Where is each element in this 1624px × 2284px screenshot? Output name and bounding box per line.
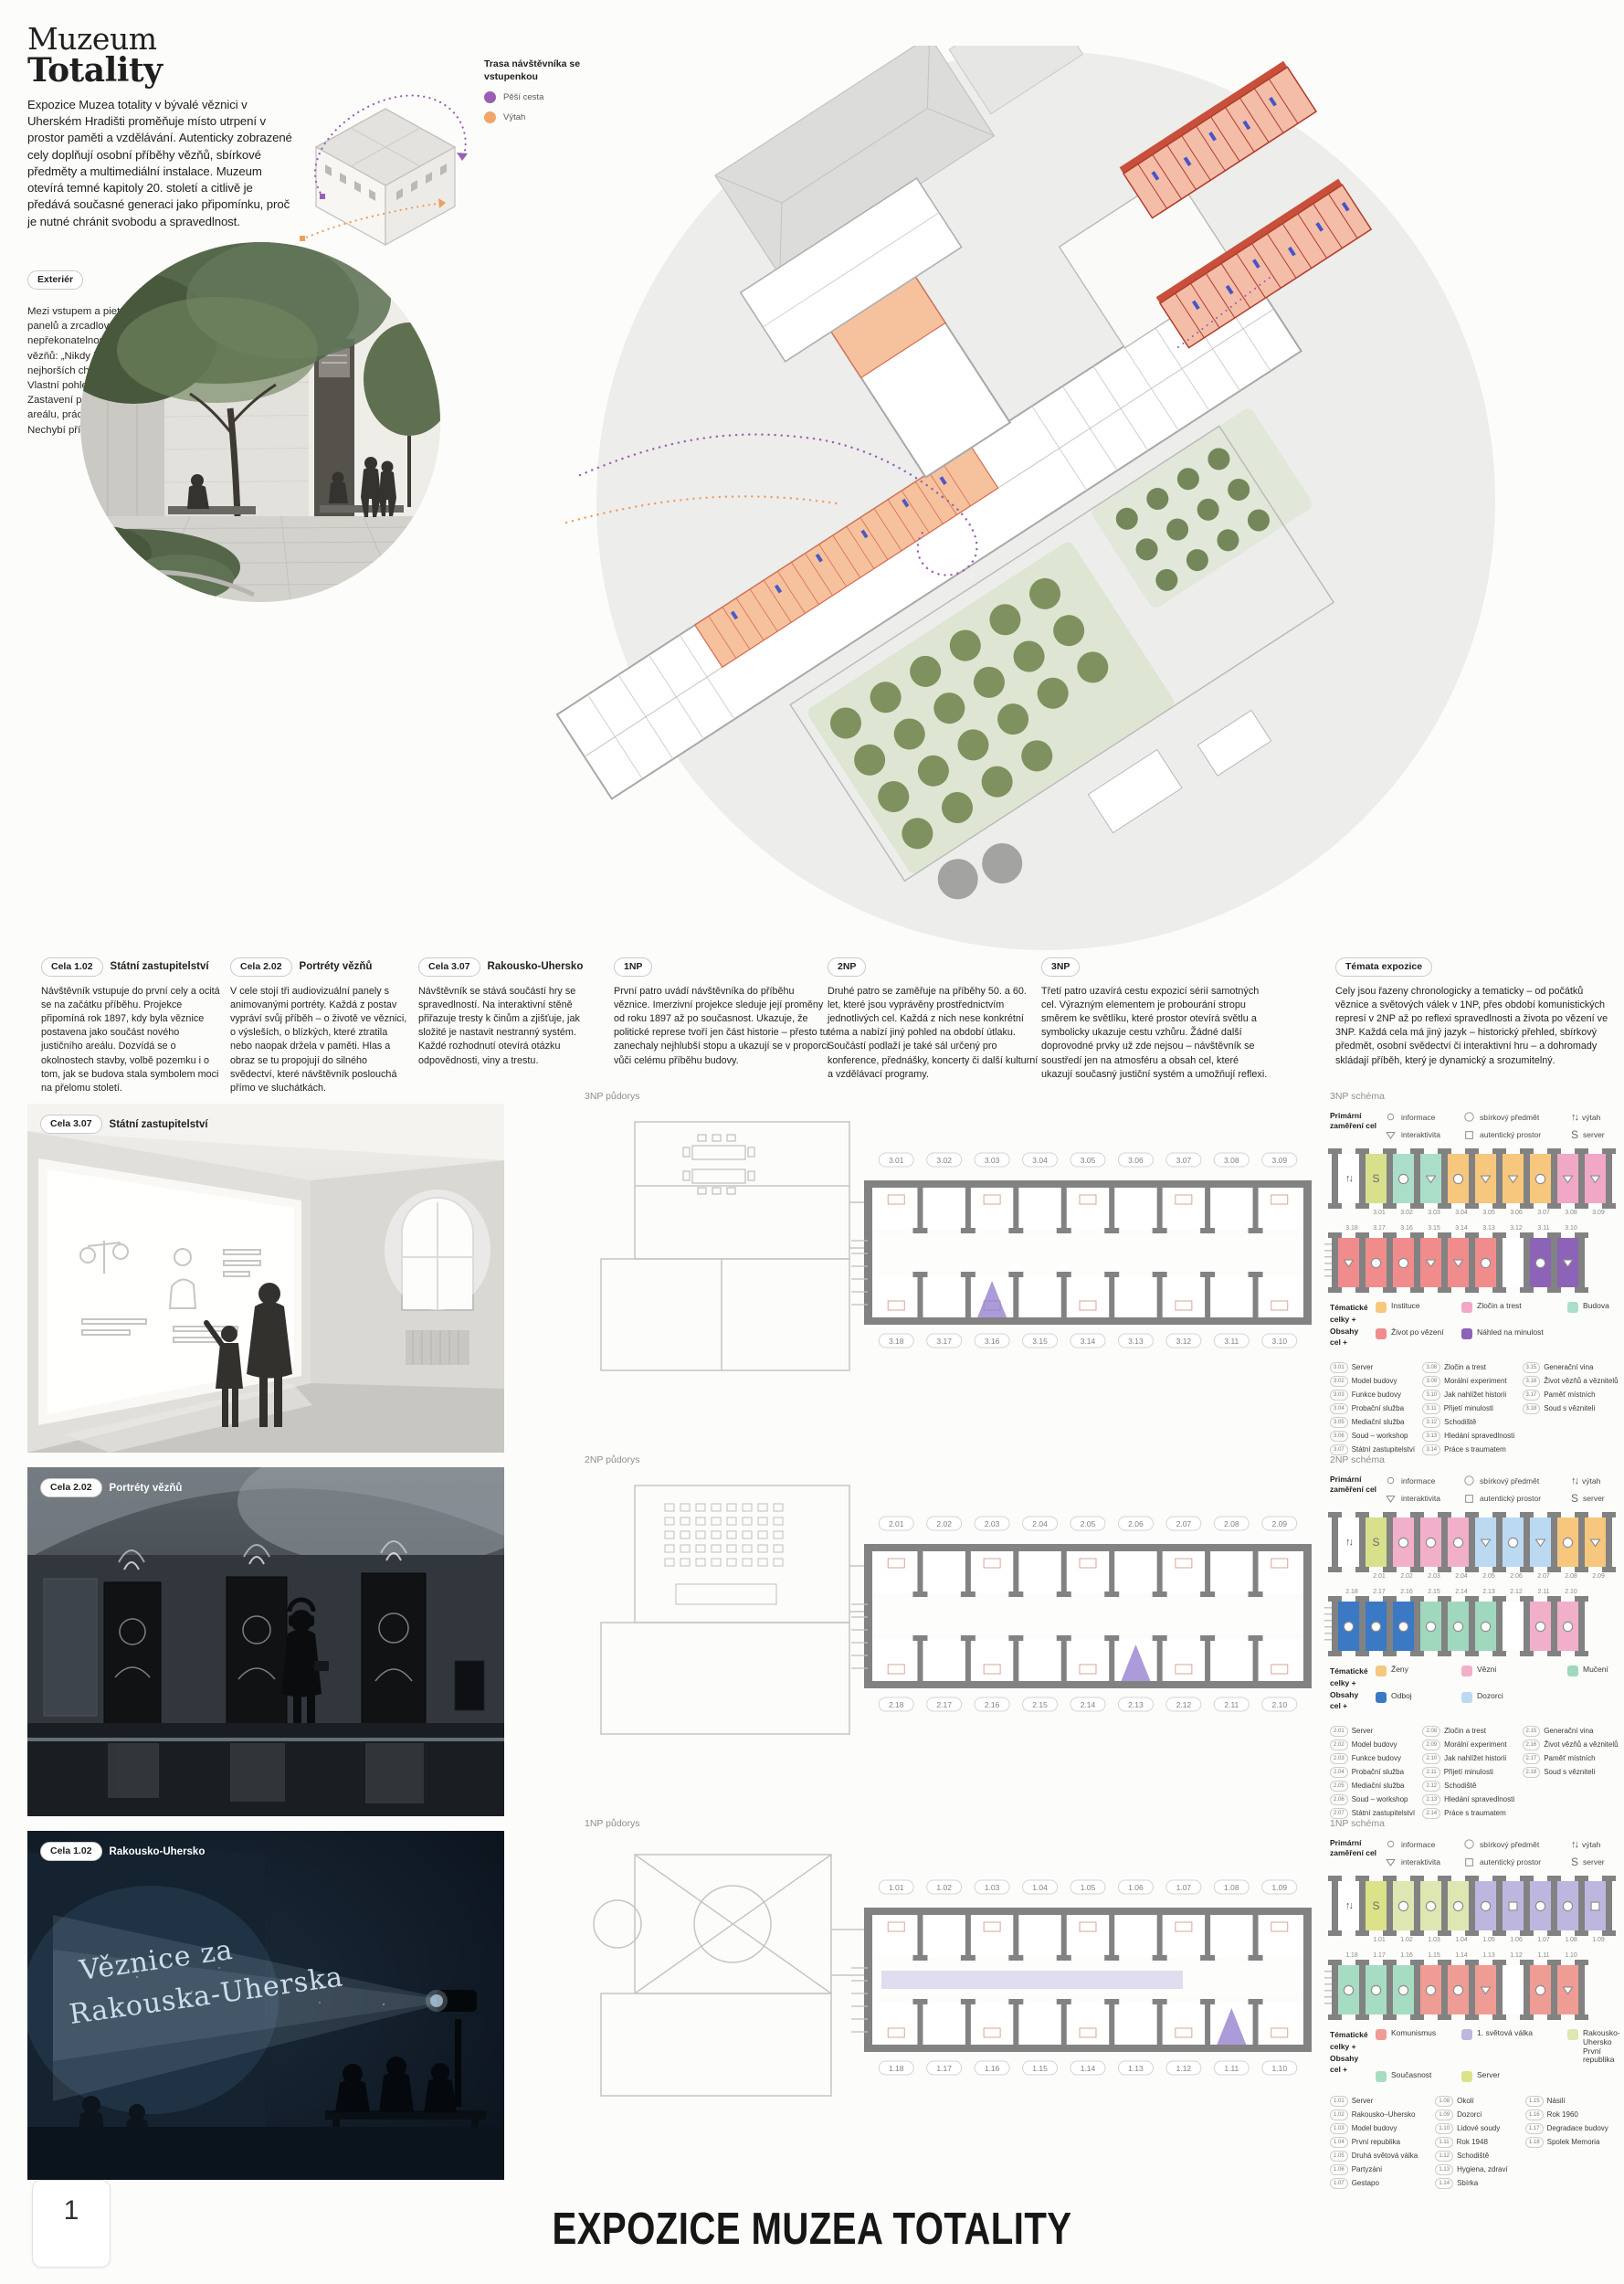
svg-text:1.13: 1.13	[1128, 2064, 1144, 2073]
cell-index-item: 1.18Spolek Memoria	[1525, 2137, 1620, 2148]
schema-cell	[1585, 1517, 1606, 1567]
cell-index-item: 3.13Hledání spravedlnosti	[1422, 1431, 1516, 1442]
theme-legend: Tématické celky +Obsahy cel +Komunismus1…	[1330, 2029, 1620, 2082]
schema-cell	[1475, 1602, 1496, 1651]
svg-text:3.18: 3.18	[889, 1337, 904, 1346]
legend-item-info: informace	[1385, 1838, 1463, 1850]
cell-index-list: 3.01Server3.02Model budovy3.03Funkce bud…	[1330, 1360, 1620, 1456]
svg-text:1.04: 1.04	[1032, 1883, 1048, 1892]
page-number: 1	[64, 2195, 79, 2267]
floor-plan-2np: 2NP půdorys 2.012.022.032.042.052.062.07…	[585, 1454, 1315, 1790]
cell-strip-lower	[1332, 1960, 1620, 2020]
schema-cell	[1585, 1154, 1606, 1203]
cell-index-item: 3.10Jak nahlížet historii	[1422, 1390, 1516, 1401]
cell-index-item: 3.01Server	[1330, 1362, 1417, 1373]
legend-item-bigcircle: sbírkový předmět	[1463, 1838, 1571, 1850]
cell-index-list: 2.01Server2.02Model budovy2.03Funkce bud…	[1330, 1724, 1620, 1820]
cela-pill: Cela 2.02	[40, 1478, 102, 1497]
svg-text:2.10: 2.10	[1272, 1700, 1288, 1709]
cell-index-item: 1.15Násilí	[1525, 2096, 1620, 2107]
info-col-cela-202: Cela 2.02Portréty vězňů V cele stojí tři…	[230, 957, 409, 1095]
cell-index-item: 2.12Schodiště	[1422, 1781, 1516, 1792]
primary-legend: Primární zaměření celinformacesbírkový p…	[1330, 1838, 1620, 1868]
schema-cell	[1557, 1517, 1578, 1567]
schema-cell	[1557, 1965, 1578, 2014]
theme-chip-item: Náhled na minulost	[1461, 1328, 1564, 1348]
legend-item-square: autentický prostor	[1463, 1856, 1571, 1868]
svg-text:2.09: 2.09	[1272, 1519, 1288, 1528]
cell-index-item: 3.04Probační služba	[1330, 1403, 1417, 1414]
svg-text:2.17: 2.17	[936, 1700, 952, 1709]
cell-index-item: 3.09Morální experiment	[1422, 1376, 1516, 1387]
svg-text:2.01: 2.01	[889, 1519, 904, 1528]
cela-pill: Cela 1.02	[40, 1842, 102, 1861]
floor-plan-drawing: 3.013.023.033.043.053.063.073.083.093.18…	[585, 1102, 1315, 1426]
svg-text:3.11: 3.11	[1224, 1337, 1239, 1346]
schema-cell	[1448, 1154, 1469, 1203]
svg-text:2.11: 2.11	[1224, 1700, 1239, 1709]
cell-index-item: 1.03Model budovy	[1330, 2123, 1429, 2134]
info-col-cela-102: Cela 1.02Státní zastupitelství Návštěvní…	[41, 957, 220, 1095]
cell-strip-upper: ↑↓S	[1332, 1148, 1620, 1209]
svg-text:1.06: 1.06	[1128, 1883, 1144, 1892]
svg-text:1.10: 1.10	[1272, 2064, 1288, 2073]
svg-text:1.17: 1.17	[936, 2064, 952, 2073]
schema-cell	[1503, 1517, 1524, 1567]
schema-cell	[1475, 1965, 1496, 2014]
schema-cell	[1420, 1517, 1441, 1567]
info-col-1np: 1NP První patro uvádí návštěvníka do pří…	[614, 957, 831, 1068]
info-col-3np: 3NP Třetí patro uzavírá cestu expozicí s…	[1041, 957, 1271, 1082]
svg-text:3.10: 3.10	[1272, 1337, 1288, 1346]
schema-cell	[1448, 1238, 1469, 1287]
svg-text:2.04: 2.04	[1032, 1519, 1048, 1528]
schema-1np: 1NP schéma Primární zaměření celinformac…	[1330, 1818, 1620, 2190]
svg-text:1.05: 1.05	[1081, 1883, 1096, 1892]
theme-chip-item: Server	[1461, 2071, 1564, 2082]
schema-cell	[1393, 1238, 1414, 1287]
cell-index-item: 3.03Funkce budovy	[1330, 1390, 1417, 1401]
cell-index-item: 1.11Rok 1948	[1435, 2137, 1520, 2148]
schema-cell	[1420, 1238, 1441, 1287]
cell-index-item: 2.14Práce s traumatem	[1422, 1808, 1516, 1819]
svg-text:1.01: 1.01	[889, 1883, 904, 1892]
cela-pill: Cela 3.07	[40, 1115, 102, 1134]
legend-item-info: informace	[1385, 1111, 1463, 1123]
cell-index-item: 2.18Soud s vězniteli	[1523, 1767, 1620, 1778]
schema-cell: ↑↓	[1338, 1154, 1359, 1203]
svg-text:1.16: 1.16	[985, 2064, 1000, 2073]
cell-index-item: 1.13Hygiena, zdraví	[1435, 2164, 1520, 2175]
cell-index-item: 2.13Hledání spravedlnosti	[1422, 1794, 1516, 1805]
svg-text:3.03: 3.03	[985, 1156, 1000, 1165]
schema-cell	[1530, 1965, 1551, 2014]
schema-cell	[1475, 1881, 1496, 1930]
cela-pill: Cela 1.02	[41, 957, 103, 977]
cell-index-item: 2.06Soud – workshop	[1330, 1794, 1417, 1805]
cell-index-item: 3.15Generační vina	[1523, 1362, 1620, 1373]
floor-plan-3np: 3NP půdorys 3.013.023.033.043.053.063.07…	[585, 1091, 1315, 1426]
schema-cell	[1557, 1602, 1578, 1651]
cell-index-item: 2.07Státní zastupitelství	[1330, 1808, 1417, 1819]
cell-strip-lower	[1332, 1232, 1620, 1293]
cell-index-item: 3.16Život vězňů a věznitelů	[1523, 1376, 1620, 1387]
svg-text:2.08: 2.08	[1224, 1519, 1239, 1528]
floor-plan-1np: 1NP půdorys 1.011.021.031.041.051.061.07…	[585, 1818, 1315, 2153]
schema-cell	[1448, 1881, 1469, 1930]
svg-text:2.13: 2.13	[1128, 1700, 1144, 1709]
cell-index-item: 1.01Server	[1330, 2096, 1429, 2107]
svg-text:1.15: 1.15	[1032, 2064, 1048, 2073]
legend-item-server: Sserver	[1571, 1128, 1620, 1141]
poster-title: Muzeum Totality	[27, 24, 163, 87]
cell-index-item: 3.12Schodiště	[1422, 1417, 1516, 1428]
svg-text:3.13: 3.13	[1128, 1337, 1144, 1346]
theme-chip-item: Rakousko-Uhersko První republika	[1567, 2029, 1620, 2065]
info-col-2np: 2NP Druhé patro se zaměřuje na příběhy 5…	[828, 957, 1039, 1082]
theme-chip-item: Zločin a trest	[1461, 1302, 1564, 1322]
title-line-2: Totality	[27, 54, 163, 87]
cell-index-item: 1.09Dozorci	[1435, 2110, 1520, 2120]
schema-cell	[1448, 1602, 1469, 1651]
radiator	[406, 1330, 469, 1365]
schema-cell: S	[1366, 1154, 1387, 1203]
theme-chip-item: 1. světová válka	[1461, 2029, 1564, 2065]
schema-cell	[1393, 1881, 1414, 1930]
schema-cell	[1530, 1881, 1551, 1930]
schema-cell	[1530, 1602, 1551, 1651]
schema-cell	[1475, 1238, 1496, 1287]
schema-cell	[1393, 1517, 1414, 1567]
schema-cell	[1393, 1602, 1414, 1651]
schema-cell	[1475, 1154, 1496, 1203]
intro-paragraph: Expozice Muzea totality v bývalé věznici…	[27, 97, 294, 230]
schema-cell	[1393, 1154, 1414, 1203]
render-cela-102-rakousko-uhersko: Věznice za Rakouska-Uherska	[27, 1831, 504, 2180]
schema-cell	[1338, 1965, 1359, 2014]
svg-text:3.01: 3.01	[889, 1156, 904, 1165]
schema-cell	[1585, 1881, 1606, 1930]
cell-index-item: 1.04První republika	[1330, 2137, 1429, 2148]
cell-index-item: 2.03Funkce budovy	[1330, 1753, 1417, 1764]
cell-index-item: 3.02Model budovy	[1330, 1376, 1417, 1387]
exterior-pill: Exteriér	[27, 270, 83, 290]
svg-text:3.04: 3.04	[1032, 1156, 1048, 1165]
svg-text:1.02: 1.02	[936, 1883, 952, 1892]
svg-text:2.05: 2.05	[1081, 1519, 1096, 1528]
schema-3np: 3NP schéma Primární zaměření celinformac…	[1330, 1091, 1620, 1456]
svg-text:2.14: 2.14	[1081, 1700, 1096, 1709]
cell-index-item: 2.08Zločin a trest	[1422, 1726, 1516, 1737]
schema-cell	[1338, 1238, 1359, 1287]
cell-index-item: 3.14Práce s traumatem	[1422, 1444, 1516, 1455]
svg-text:3.15: 3.15	[1032, 1337, 1048, 1346]
temata-pill: Témata expozice	[1335, 957, 1432, 977]
title-line-1: Muzeum	[27, 24, 163, 54]
schema-cell	[1530, 1517, 1551, 1567]
legend-item-square: autentický prostor	[1463, 1128, 1571, 1141]
courtyard-photo	[80, 242, 440, 607]
floor-pill: 3NP	[1041, 957, 1080, 977]
arched-window	[385, 1190, 490, 1310]
svg-text:1.09: 1.09	[1272, 1883, 1288, 1892]
cell-index-item: 3.06Soud – workshop	[1330, 1431, 1417, 1442]
schema-cell: ↑↓	[1338, 1517, 1359, 1567]
cell-index-item: 2.01Server	[1330, 1726, 1417, 1737]
svg-text:3.08: 3.08	[1224, 1156, 1239, 1165]
render-label: Cela 2.02 Portréty vězňů	[40, 1478, 182, 1497]
schema-cell	[1503, 1154, 1524, 1203]
svg-text:3.16: 3.16	[985, 1337, 1000, 1346]
cell-index-item: 1.05Druhá světová válka	[1330, 2151, 1429, 2162]
cell-index-item: 2.04Probační služba	[1330, 1767, 1417, 1778]
svg-text:1.12: 1.12	[1176, 2064, 1192, 2073]
cell-strip-upper: ↑↓S	[1332, 1876, 1620, 1936]
legend-item-triangle: interaktivita	[1385, 1492, 1463, 1505]
cell-index-item: 3.08Zločin a trest	[1422, 1362, 1516, 1373]
svg-text:3.14: 3.14	[1081, 1337, 1096, 1346]
svg-text:2.12: 2.12	[1176, 1700, 1192, 1709]
legend-item-lift: ↑↓výtah	[1571, 1111, 1620, 1123]
svg-text:3.05: 3.05	[1081, 1156, 1096, 1165]
schema-cell	[1530, 1238, 1551, 1287]
svg-text:3.17: 3.17	[936, 1337, 952, 1346]
theme-legend: Tématické celky +Obsahy cel +InstituceZl…	[1330, 1302, 1620, 1348]
cell-index-item: 1.17Degradace budovy	[1525, 2123, 1620, 2134]
schema-cell: S	[1366, 1881, 1387, 1930]
cell-index-item: 2.11Přijetí minulosti	[1422, 1767, 1516, 1778]
svg-text:3.07: 3.07	[1176, 1156, 1192, 1165]
svg-text:2.03: 2.03	[985, 1519, 1000, 1528]
cell-index-item: 3.11Přijetí minulosti	[1422, 1403, 1516, 1414]
schema-cell	[1366, 1238, 1387, 1287]
schema-cell	[1503, 1602, 1524, 1651]
svg-text:2.02: 2.02	[936, 1519, 952, 1528]
schema-cell	[1503, 1238, 1524, 1287]
legend-item-triangle: interaktivita	[1385, 1128, 1463, 1141]
info-col-temata: Témata expozice Cely jsou řazeny chronol…	[1335, 957, 1611, 1068]
legend-item-lift: ↑↓výtah	[1571, 1838, 1620, 1850]
cell-index-item: 1.12Schodiště	[1435, 2151, 1520, 2162]
legend-item-bigcircle: sbírkový předmět	[1463, 1111, 1571, 1123]
cela-pill: Cela 2.02	[230, 957, 292, 977]
info-col-cela-307: Cela 3.07Rakousko-Uhersko Návštěvník se …	[418, 957, 588, 1068]
render-label: Cela 1.02 Rakousko-Uhersko	[40, 1842, 205, 1861]
schema-cell	[1366, 1965, 1387, 2014]
cell-index-item: 1.14Sbírka	[1435, 2178, 1520, 2189]
theme-chip-item: Současnost	[1376, 2071, 1458, 2082]
svg-text:1.03: 1.03	[985, 1883, 1000, 1892]
theme-chip-item: Odboj	[1376, 1692, 1458, 1712]
legend-item-server: Sserver	[1571, 1856, 1620, 1868]
theme-legend: Tématické celky +Obsahy cel +ŽenyVězniMu…	[1330, 1665, 1620, 1712]
legend-item-bigcircle: sbírkový předmět	[1463, 1475, 1571, 1486]
cell-index-item: 3.07Státní zastupitelství	[1330, 1444, 1417, 1455]
svg-text:1.07: 1.07	[1176, 1883, 1192, 1892]
theme-chip-item: Komunismus	[1376, 2029, 1458, 2065]
render-label: Cela 3.07 Státní zastupitelství	[40, 1115, 208, 1134]
svg-text:3.02: 3.02	[936, 1156, 952, 1165]
schema-cell	[1420, 1154, 1441, 1203]
schema-cell	[1557, 1881, 1578, 1930]
schema-cell	[1366, 1602, 1387, 1651]
schema-cell	[1557, 1154, 1578, 1203]
footer-title: EXPOZICE MUZEA TOTALITY	[146, 2204, 1478, 2255]
cell-index-item: 2.09Morální experiment	[1422, 1739, 1516, 1750]
schema-cell	[1393, 1965, 1414, 2014]
schema-cell	[1420, 1965, 1441, 2014]
schema-cell	[1503, 1965, 1524, 2014]
theme-chip-item: Život po vězení	[1376, 1328, 1458, 1348]
cell-index-item: 2.16Život vězňů a věznitelů	[1523, 1739, 1620, 1750]
cell-index-item: 1.10Lidové soudy	[1435, 2123, 1520, 2134]
cell-index-item: 2.05Mediační služba	[1330, 1781, 1417, 1792]
theme-chip-item: Instituce	[1376, 1302, 1458, 1322]
bench	[168, 506, 256, 514]
cell-index-item: 3.17Paměť místních	[1523, 1390, 1620, 1401]
cell-strip-upper: ↑↓S	[1332, 1512, 1620, 1572]
floor-plan-drawing: 1.011.021.031.041.051.061.071.081.091.18…	[585, 1829, 1315, 2153]
floor-pill: 2NP	[828, 957, 866, 977]
theme-chip-item: Ženy	[1376, 1665, 1458, 1686]
site-plan-circle	[429, 46, 1624, 964]
theme-chip-item: Mučení	[1567, 1665, 1620, 1686]
page-number-box: 1	[32, 2180, 111, 2268]
schema-cell	[1338, 1602, 1359, 1651]
poster-board: Muzeum Totality Expozice Muzea totality …	[0, 0, 1624, 2284]
cell-index-item: 1.08Okolí	[1435, 2096, 1520, 2107]
legend-item-square: autentický prostor	[1463, 1492, 1571, 1505]
cell-index-item: 2.17Paměť místních	[1523, 1753, 1620, 1764]
exterior-tag: Exteriér	[27, 270, 83, 290]
schema-cell	[1448, 1965, 1469, 2014]
svg-text:2.06: 2.06	[1128, 1519, 1144, 1528]
schema-cell	[1420, 1602, 1441, 1651]
cell-index-item: 2.02Model budovy	[1330, 1739, 1417, 1750]
svg-text:3.09: 3.09	[1272, 1156, 1288, 1165]
schema-cell	[1503, 1881, 1524, 1930]
svg-text:3.12: 3.12	[1176, 1337, 1192, 1346]
schema-cell	[1557, 1238, 1578, 1287]
svg-text:2.16: 2.16	[985, 1700, 1000, 1709]
cell-index-item: 2.10Jak nahlížet historii	[1422, 1753, 1516, 1764]
primary-legend: Primární zaměření celinformacesbírkový p…	[1330, 1111, 1620, 1141]
svg-text:1.11: 1.11	[1224, 2064, 1239, 2073]
cell-index-item: 1.16Rok 1960	[1525, 2110, 1620, 2120]
cela-pill: Cela 3.07	[418, 957, 480, 977]
theme-chip-item: Vězni	[1461, 1665, 1564, 1686]
cell-index-item: 2.15Generační vina	[1523, 1726, 1620, 1737]
cell-index-list: 1.01Server1.02Rakousko–Uhersko1.03Model …	[1330, 2094, 1620, 2190]
svg-text:2.15: 2.15	[1032, 1700, 1048, 1709]
svg-text:2.07: 2.07	[1176, 1519, 1192, 1528]
schema-cell	[1448, 1517, 1469, 1567]
legend-item-lift: ↑↓výtah	[1571, 1475, 1620, 1486]
schema-cell	[1475, 1517, 1496, 1567]
schema-cell: S	[1366, 1517, 1387, 1567]
schema-cell: ↑↓	[1338, 1881, 1359, 1930]
cell-index-item: 3.05Mediační služba	[1330, 1417, 1417, 1428]
legend-item-info: informace	[1385, 1475, 1463, 1486]
svg-text:1.14: 1.14	[1081, 2064, 1096, 2073]
svg-text:2.18: 2.18	[889, 1700, 904, 1709]
schema-2np: 2NP schéma Primární zaměření celinformac…	[1330, 1454, 1620, 1820]
render-cela-202-portrety-veznu: Cela 2.02 Portréty vězňů	[27, 1467, 504, 1816]
floor-light-strip	[27, 1738, 504, 1741]
render-cela-307-statni-zastupitelstvi: Cela 3.07 Státní zastupitelství	[27, 1104, 504, 1453]
primary-legend: Primární zaměření celinformacesbírkový p…	[1330, 1475, 1620, 1505]
cell-index-item: 1.02Rakousko–Uhersko	[1330, 2110, 1429, 2120]
svg-text:3.06: 3.06	[1128, 1156, 1144, 1165]
cell-strip-lower	[1332, 1596, 1620, 1656]
floor-plan-drawing: 2.012.022.032.042.052.062.072.082.092.18…	[585, 1465, 1315, 1790]
theme-chip-item: Dozorci	[1461, 1692, 1564, 1712]
floor-pill: 1NP	[614, 957, 652, 977]
legend-item-server: Sserver	[1571, 1492, 1620, 1505]
svg-text:1.08: 1.08	[1224, 1883, 1239, 1892]
schema-cell	[1420, 1881, 1441, 1930]
svg-text:1.18: 1.18	[889, 2064, 904, 2073]
cell-index-item: 1.07Gestapo	[1330, 2178, 1429, 2189]
schema-cell	[1530, 1154, 1551, 1203]
legend-item-triangle: interaktivita	[1385, 1856, 1463, 1868]
cell-index-item: 1.06Partyzáni	[1330, 2164, 1429, 2175]
theme-chip-item: Budova	[1567, 1302, 1620, 1322]
cell-index-item: 3.18Soud s vězniteli	[1523, 1403, 1620, 1414]
